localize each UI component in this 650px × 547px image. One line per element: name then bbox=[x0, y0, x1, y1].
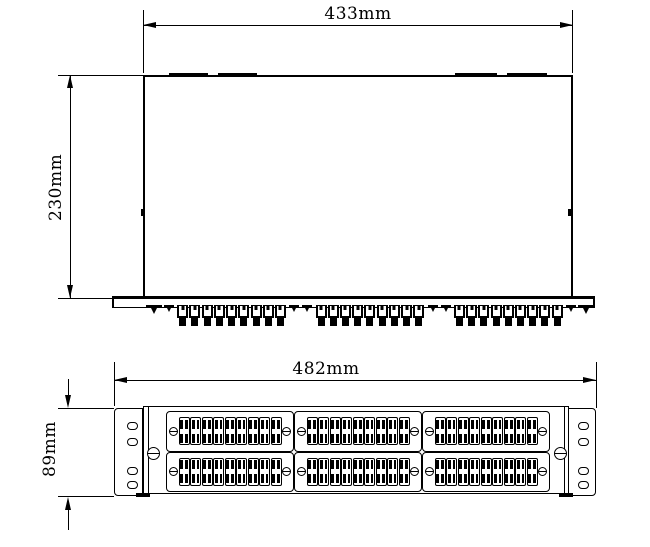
fiber-adapter bbox=[399, 417, 410, 445]
rack-foot bbox=[146, 305, 162, 314]
plate-screw bbox=[297, 467, 306, 476]
adapter-connector bbox=[340, 305, 351, 326]
chassis-outline bbox=[143, 75, 573, 299]
fiber-adapter bbox=[387, 458, 398, 486]
adapter-connector bbox=[478, 305, 489, 326]
plate-screw bbox=[282, 467, 291, 476]
adapter-connector bbox=[214, 305, 225, 326]
dim-89-line-lower bbox=[68, 510, 69, 530]
vent-slot bbox=[218, 73, 257, 77]
vent-slot bbox=[455, 73, 497, 77]
fiber-adapter bbox=[376, 417, 387, 445]
plate-screw bbox=[169, 467, 178, 476]
adapter-plate bbox=[422, 411, 550, 452]
dim-482-line bbox=[114, 380, 596, 381]
panel-screw-top bbox=[302, 305, 312, 312]
adapter-row bbox=[434, 458, 538, 486]
fiber-adapter bbox=[330, 458, 341, 486]
adapter-connector bbox=[466, 305, 477, 326]
fiber-adapter bbox=[307, 458, 318, 486]
adapter-plates-grid bbox=[166, 411, 550, 492]
dim-230-label: 230mm bbox=[46, 147, 66, 227]
foot-tab-right bbox=[559, 493, 573, 497]
adapter-connector bbox=[552, 305, 563, 326]
fiber-adapter bbox=[469, 458, 480, 486]
dim-482-label: 482mm bbox=[286, 359, 366, 379]
fiber-adapter bbox=[202, 458, 213, 486]
edge-tick-left bbox=[141, 209, 145, 216]
fiber-adapter bbox=[481, 458, 492, 486]
ear-mounting-hole-left bbox=[127, 422, 138, 431]
adapter-plate bbox=[166, 411, 294, 452]
fiber-adapter bbox=[271, 458, 282, 486]
fiber-adapter bbox=[341, 417, 352, 445]
foot-tab-left bbox=[136, 493, 150, 497]
dim-433-ext-right bbox=[572, 10, 573, 73]
adapter-connector bbox=[316, 305, 327, 326]
panel-screw-top bbox=[441, 305, 451, 312]
adapter-connector bbox=[491, 305, 502, 326]
ear-mounting-hole-right bbox=[578, 438, 589, 447]
adapter-connector bbox=[454, 305, 465, 326]
panel-screw-top bbox=[566, 305, 576, 312]
fiber-adapter bbox=[213, 458, 224, 486]
adapter-connector bbox=[539, 305, 550, 326]
ear-mounting-hole-right bbox=[578, 467, 589, 476]
fiber-adapter bbox=[330, 417, 341, 445]
fiber-adapter bbox=[353, 458, 364, 486]
fiber-adapter bbox=[248, 458, 259, 486]
adapter-connector bbox=[251, 305, 262, 326]
top-connector-strip bbox=[146, 305, 594, 331]
adapter-group bbox=[453, 305, 564, 326]
dim-230-line bbox=[70, 75, 71, 298]
adapter-connector bbox=[401, 305, 412, 326]
fiber-adapter bbox=[271, 417, 282, 445]
adapter-connector bbox=[189, 305, 200, 326]
dim-89-ext-top bbox=[58, 408, 114, 409]
dim-433-arrow-left bbox=[143, 22, 156, 28]
fiber-adapter bbox=[458, 458, 469, 486]
fiber-adapter bbox=[225, 458, 236, 486]
plate-screw bbox=[282, 427, 291, 436]
dim-482-arrow-left bbox=[114, 377, 127, 383]
plate-screw bbox=[425, 427, 434, 436]
fiber-adapter bbox=[515, 417, 526, 445]
dim-433-line bbox=[143, 25, 573, 26]
adapter-connector bbox=[226, 305, 237, 326]
fiber-adapter bbox=[481, 417, 492, 445]
fiber-adapter bbox=[446, 458, 457, 486]
adapter-row bbox=[306, 417, 410, 445]
dim-482-ext-right bbox=[596, 362, 597, 408]
screw-pair bbox=[428, 305, 451, 312]
adapter-connector bbox=[364, 305, 375, 326]
captive-screw-right bbox=[554, 447, 567, 460]
fiber-adapter bbox=[318, 417, 329, 445]
technical-drawing: 433mm 230mm 482mm 8 bbox=[0, 0, 650, 547]
adapter-connector bbox=[275, 305, 286, 326]
fiber-adapter bbox=[376, 458, 387, 486]
adapter-row bbox=[178, 458, 282, 486]
fiber-adapter bbox=[307, 417, 318, 445]
ear-mounting-hole-right bbox=[578, 481, 589, 490]
panel-screw-top bbox=[428, 305, 438, 312]
panel-screw-top bbox=[164, 305, 174, 312]
dim-230-arrow-top bbox=[67, 75, 73, 88]
dim-230-ext-bottom bbox=[58, 298, 112, 299]
fiber-adapter bbox=[236, 417, 247, 445]
plate-screw bbox=[410, 467, 419, 476]
dim-482-arrow-right bbox=[583, 377, 596, 383]
plate-screw bbox=[425, 467, 434, 476]
ear-mounting-hole-left bbox=[127, 467, 138, 476]
plate-screw bbox=[538, 467, 547, 476]
fiber-adapter bbox=[364, 417, 375, 445]
dim-89-arrow-top bbox=[65, 395, 71, 408]
adapter-plate bbox=[166, 452, 294, 493]
fiber-adapter bbox=[190, 417, 201, 445]
fiber-adapter bbox=[504, 417, 515, 445]
fiber-adapter bbox=[318, 458, 329, 486]
adapter-plate bbox=[294, 411, 422, 452]
edge-tick-right bbox=[568, 209, 572, 216]
plate-screw bbox=[410, 427, 419, 436]
fiber-adapter bbox=[213, 417, 224, 445]
fiber-adapter bbox=[353, 417, 364, 445]
fiber-adapter bbox=[236, 458, 247, 486]
plate-screw bbox=[169, 427, 178, 436]
adapter-plate bbox=[294, 452, 422, 493]
fiber-adapter bbox=[202, 417, 213, 445]
ear-mounting-hole-left bbox=[127, 481, 138, 490]
fiber-adapter bbox=[179, 458, 190, 486]
dim-89-arrow-bottom bbox=[65, 497, 71, 510]
fiber-adapter bbox=[341, 458, 352, 486]
dim-230-arrow-bottom bbox=[67, 285, 73, 298]
fiber-adapter bbox=[435, 417, 446, 445]
fiber-adapter bbox=[399, 458, 410, 486]
adapter-connector bbox=[202, 305, 213, 326]
dim-89-label: 89mm bbox=[40, 419, 60, 479]
vent-slot bbox=[507, 73, 547, 77]
adapter-connector bbox=[527, 305, 538, 326]
fiber-adapter bbox=[492, 458, 503, 486]
fiber-adapter bbox=[190, 458, 201, 486]
dim-482-ext-left bbox=[114, 362, 115, 406]
adapter-row bbox=[178, 417, 282, 445]
fiber-adapter bbox=[504, 458, 515, 486]
adapter-connector bbox=[263, 305, 274, 326]
ear-mounting-hole-right bbox=[578, 422, 589, 431]
captive-screw-left bbox=[147, 447, 160, 460]
adapter-row bbox=[306, 458, 410, 486]
fiber-adapter bbox=[446, 417, 457, 445]
adapter-connector bbox=[238, 305, 249, 326]
vent-slot bbox=[169, 73, 208, 77]
adapter-connector bbox=[413, 305, 424, 326]
adapter-group bbox=[314, 305, 425, 326]
adapter-row bbox=[434, 417, 538, 445]
adapter-connector bbox=[377, 305, 388, 326]
fiber-adapter bbox=[492, 417, 503, 445]
adapter-connector bbox=[328, 305, 339, 326]
fiber-adapter bbox=[225, 417, 236, 445]
fiber-adapter bbox=[259, 458, 270, 486]
fiber-adapter bbox=[527, 458, 538, 486]
dim-433-ext-left bbox=[143, 10, 144, 73]
adapter-connector bbox=[352, 305, 363, 326]
fiber-adapter bbox=[469, 417, 480, 445]
rack-foot bbox=[578, 305, 594, 314]
fiber-adapter bbox=[364, 458, 375, 486]
adapter-group bbox=[176, 305, 287, 326]
fiber-adapter bbox=[527, 417, 538, 445]
panel-screw-top bbox=[289, 305, 299, 312]
fiber-adapter bbox=[179, 417, 190, 445]
screw-pair bbox=[289, 305, 312, 312]
adapter-plate bbox=[422, 452, 550, 493]
fiber-adapter bbox=[248, 417, 259, 445]
plate-screw bbox=[538, 427, 547, 436]
adapter-connector bbox=[177, 305, 188, 326]
fiber-adapter bbox=[435, 458, 446, 486]
dim-433-arrow-right bbox=[560, 22, 573, 28]
adapter-connector bbox=[503, 305, 514, 326]
fiber-adapter bbox=[515, 458, 526, 486]
adapter-connector bbox=[515, 305, 526, 326]
adapter-connector bbox=[389, 305, 400, 326]
fiber-adapter bbox=[458, 417, 469, 445]
dim-433-label: 433mm bbox=[313, 4, 403, 24]
fiber-adapter bbox=[259, 417, 270, 445]
plate-screw bbox=[297, 427, 306, 436]
dim-89-line-upper bbox=[68, 379, 69, 396]
ear-mounting-hole-left bbox=[127, 438, 138, 447]
fiber-adapter bbox=[387, 417, 398, 445]
